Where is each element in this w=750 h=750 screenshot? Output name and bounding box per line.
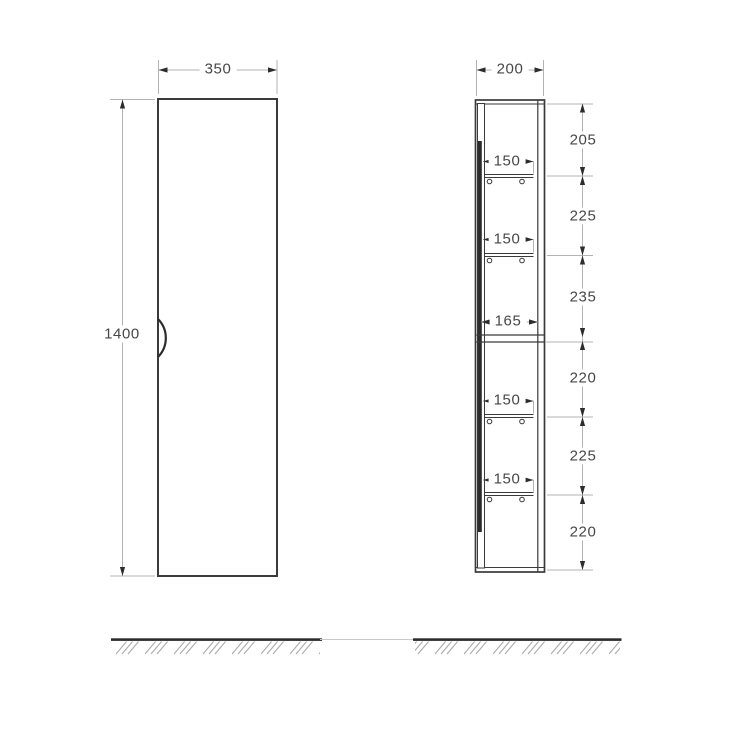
drawing-linework xyxy=(0,0,750,750)
shelf-pin-icon xyxy=(487,258,492,263)
shelf-pin-icon xyxy=(520,419,525,424)
ground-hatching xyxy=(113,642,320,656)
shelf-pin-icon xyxy=(487,419,492,424)
height-segment-label-1: 205 xyxy=(565,132,602,149)
shelf-pin-icon xyxy=(520,258,525,263)
side-view xyxy=(476,100,545,572)
shelf-depth-label-4: 150 xyxy=(489,392,526,409)
shelf-pin-icon xyxy=(487,497,492,502)
shelf-depth-label-3: 165 xyxy=(490,313,527,330)
shelf-depth-label-5: 150 xyxy=(489,471,526,488)
shelf-pin-icon xyxy=(487,179,492,184)
front-cabinet-outline xyxy=(158,99,277,576)
ground-line-left xyxy=(111,638,322,655)
front-width-dimension-label: 350 xyxy=(200,61,237,78)
ground-line-right xyxy=(413,638,622,655)
height-segment-label-2: 225 xyxy=(565,208,602,225)
shelf-pin-icon xyxy=(520,179,525,184)
height-segment-label-6: 220 xyxy=(565,524,602,541)
height-segment-label-4: 220 xyxy=(565,370,602,387)
shelf-depth-label-1: 150 xyxy=(489,153,526,170)
ground-hatching xyxy=(415,642,620,656)
side-cabinet-outline xyxy=(476,100,545,572)
side-depth-dimension-label: 200 xyxy=(492,61,529,78)
front-height-dimension-label: 1400 xyxy=(99,326,145,343)
shelf-pin-icon xyxy=(520,497,525,502)
height-segment-dimension-chain xyxy=(546,104,593,571)
height-segment-label-5: 225 xyxy=(565,448,602,465)
height-segment-label-3: 235 xyxy=(565,289,602,306)
door-panel-section xyxy=(478,141,482,532)
front-view xyxy=(158,99,277,576)
shelf-depth-label-2: 150 xyxy=(489,231,526,248)
cabinet-technical-drawing: 350 1400 200 150 150 165 150 150 205 225… xyxy=(0,0,750,750)
